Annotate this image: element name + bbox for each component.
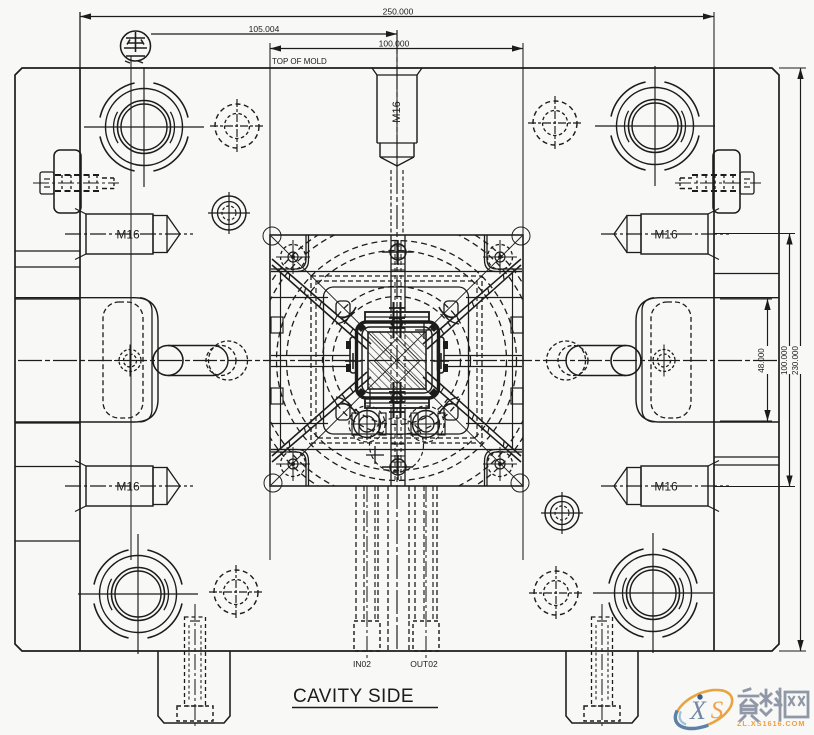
svg-text:M16: M16 — [116, 228, 140, 242]
svg-text:105.004: 105.004 — [249, 24, 280, 34]
svg-text:100.000: 100.000 — [780, 345, 789, 374]
svg-text:ZL.XS1616.COM: ZL.XS1616.COM — [737, 719, 805, 728]
svg-text:OUT02: OUT02 — [410, 659, 438, 669]
svg-text:M16: M16 — [654, 228, 678, 242]
svg-text:250.000: 250.000 — [383, 7, 414, 17]
svg-text:M16: M16 — [654, 480, 678, 494]
svg-text:X: X — [689, 696, 707, 725]
svg-text:IN02: IN02 — [353, 659, 371, 669]
svg-text:48.000: 48.000 — [757, 348, 766, 373]
svg-text:S: S — [711, 697, 724, 724]
svg-text:230.000: 230.000 — [791, 345, 800, 374]
svg-text:100.000: 100.000 — [379, 39, 410, 49]
svg-text:CAVITY SIDE: CAVITY SIDE — [293, 686, 414, 707]
svg-text:TOP OF MOLD: TOP OF MOLD — [272, 57, 327, 66]
svg-text:M16: M16 — [116, 480, 140, 494]
